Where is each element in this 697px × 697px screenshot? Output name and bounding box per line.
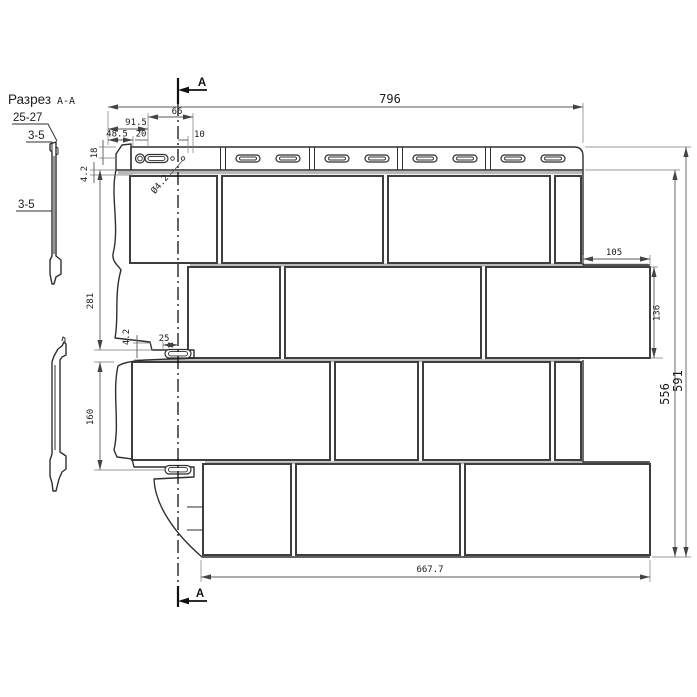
section-view-title-suffix: А-А xyxy=(57,96,75,107)
dim-25: 25 xyxy=(159,334,170,344)
dim-556: 556 xyxy=(658,383,672,405)
brick xyxy=(486,267,650,358)
wall-thickness-callout: 25-27 xyxy=(13,112,42,124)
brick xyxy=(222,176,383,263)
rail-end-cap xyxy=(116,144,131,170)
cut-arrow-top xyxy=(178,87,189,94)
brick xyxy=(188,267,280,358)
brick xyxy=(285,267,481,358)
section-profile-bottom xyxy=(50,337,66,491)
dim-136: 136 xyxy=(653,305,663,321)
dim-4-2-mid: 4.2 xyxy=(122,329,132,345)
dim-591: 591 xyxy=(671,370,685,392)
section-profile-top xyxy=(50,142,61,284)
brick xyxy=(388,176,550,263)
rail-dividers xyxy=(221,148,491,170)
drawing-canvas: Разрез А-А 25-27 3-5 3-5 xyxy=(0,0,697,697)
pilot-hole xyxy=(181,157,185,161)
round-hole xyxy=(136,154,145,163)
profile-outline xyxy=(50,342,66,491)
corner-step-lines xyxy=(187,507,203,530)
dim-91-5: 91.5 xyxy=(125,118,147,128)
pilot-hole xyxy=(171,157,175,161)
brick xyxy=(130,176,217,263)
section-marker-top: А xyxy=(198,77,206,89)
brick xyxy=(132,362,330,460)
thickness-callout-top: 3-5 xyxy=(28,130,45,142)
dim-66: 66 xyxy=(172,107,183,117)
dim-667-7: 667.7 xyxy=(416,565,443,575)
dim-10: 10 xyxy=(194,130,205,140)
rail-nail-slots xyxy=(236,155,565,162)
section-view-title: Разрез xyxy=(8,92,51,107)
brick-field xyxy=(130,176,650,555)
section-marker-bottom: А xyxy=(196,588,204,600)
dim-105: 105 xyxy=(606,248,622,258)
dim-160: 160 xyxy=(86,409,96,425)
cut-arrow-bottom xyxy=(178,598,189,605)
brick xyxy=(335,362,418,460)
brick xyxy=(296,464,460,555)
section-view-labels: Разрез А-А 25-27 3-5 3-5 xyxy=(8,92,75,211)
thickness-callout-side: 3-5 xyxy=(18,199,35,211)
brick xyxy=(203,464,291,555)
facade-panel-technical-drawing: Разрез А-А 25-27 3-5 3-5 xyxy=(0,0,697,697)
rail-shadow-band xyxy=(118,171,583,174)
dim-48-5: 48.5 xyxy=(106,130,128,140)
nail-rail xyxy=(116,144,583,170)
callout-leader xyxy=(26,142,52,162)
dim-4-2-top: 4.2 xyxy=(80,166,90,182)
profile-outline xyxy=(50,142,61,284)
brick xyxy=(423,362,550,460)
dim-18: 18 xyxy=(90,148,100,159)
dim-20: 20 xyxy=(136,130,147,140)
dim-281: 281 xyxy=(86,293,96,309)
brick xyxy=(555,176,581,263)
brick xyxy=(465,464,650,555)
brick xyxy=(555,362,581,460)
dim-796: 796 xyxy=(379,92,401,106)
